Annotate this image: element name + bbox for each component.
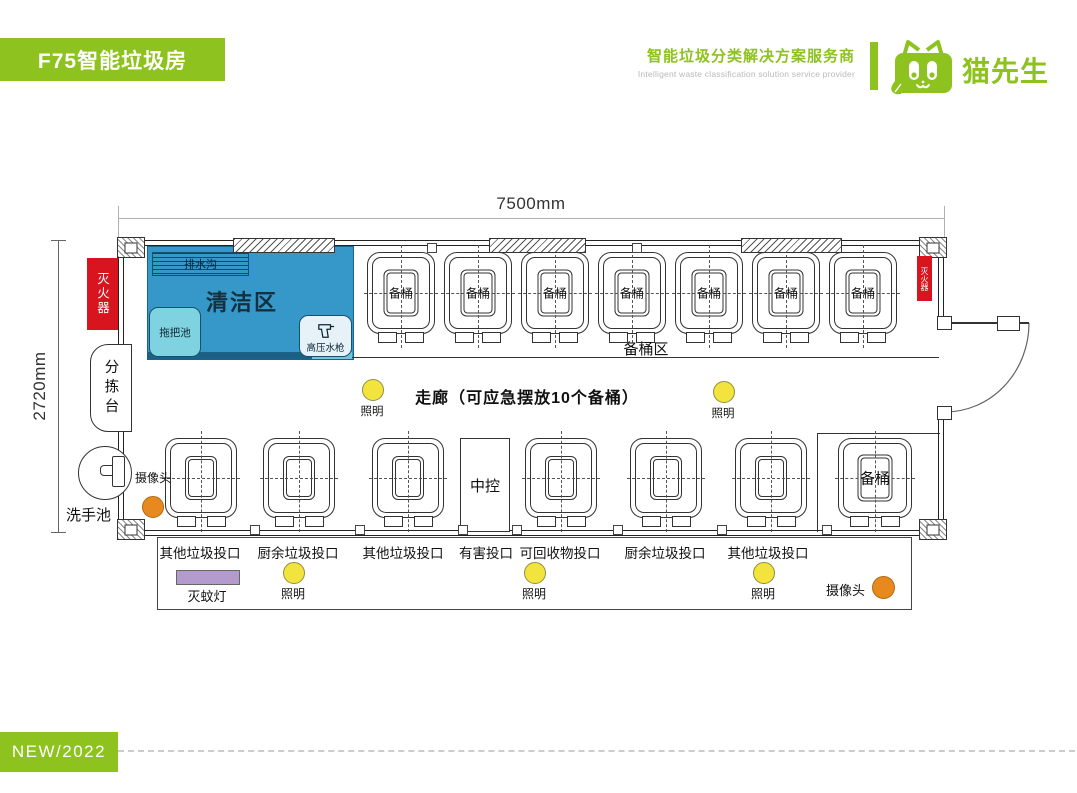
bin-foot [686,332,705,343]
door-jamb [937,316,952,330]
bin-foot [177,516,196,527]
light-label: 照明 [522,585,546,602]
bin-foot [482,332,501,343]
light-dot-icon [362,379,384,401]
door-handle [997,316,1020,331]
bin-foot [559,332,578,343]
corner-post [117,237,145,258]
bin-foot [672,516,691,527]
dim-tick [118,212,119,225]
spare-bin: 备桶 [598,252,666,334]
faucet-icon [112,456,125,487]
pressure-washer-label: 高压水枪 [306,340,344,354]
crosshair-v [771,431,772,532]
brand-separator [870,42,878,90]
bin-label: 备桶 [851,285,875,302]
louver-vent [741,238,842,253]
corner-post [919,237,947,258]
inlet-label: 有害投口 [459,542,513,562]
bin-foot [713,332,732,343]
bin-label: 备桶 [620,285,644,302]
bin-foot [567,516,586,527]
bin-foot [763,332,782,343]
spare-bin: 备桶 [829,252,897,334]
spare-bin: 备桶 [752,252,820,334]
waste-bin [372,438,444,518]
bin-foot [207,516,226,527]
drain-grate: 排水沟 [152,252,249,276]
bin-foot [881,516,900,527]
new-badge: NEW/2022 [0,732,118,772]
inlet-label: 其他垃圾投口 [160,542,241,562]
camera-dot-icon [872,576,895,599]
bin-foot [850,516,869,527]
taglines: 智能垃圾分类解决方案服务商 Intelligent waste classifi… [595,45,855,79]
inlet-label: 厨余垃圾投口 [625,542,706,562]
mop-pool: 拖把池 [149,307,201,357]
waste-bin [630,438,702,518]
bin-foot [455,332,474,343]
bin-label: 备桶 [466,285,490,302]
bin-foot [790,332,809,343]
crosshair-v [299,431,300,532]
spare-bin: 备桶 [367,252,435,334]
wall-anchor [717,525,727,535]
dim-tick [51,532,66,533]
footer-dashed-line [118,750,1075,752]
cat-logo-icon [888,39,958,95]
bin-label: 备桶 [543,285,567,302]
camera-label: 摄像头 [826,580,865,599]
light-dot-icon [713,381,735,403]
light-dot-icon [524,562,546,584]
bin-foot [405,332,424,343]
bin-foot [537,516,556,527]
inlet-label: 厨余垃圾投口 [258,542,339,562]
dim-tick [944,212,945,225]
bin-foot [378,332,397,343]
waste-bin [263,438,335,518]
inlet-label: 其他垃圾投口 [363,542,444,562]
spare-bin: 备桶 [444,252,512,334]
mosquito-lamp-icon [176,570,240,585]
spare-bin: 备桶 [838,438,912,518]
bin-label: 备桶 [774,285,798,302]
brand-name: 猫先生 [962,50,1049,90]
corridor-label: 走廊（可应急摆放10个备桶） [415,384,639,408]
product-title-banner: F75智能垃圾房 [0,38,225,81]
inlet-label: 可回收物投口 [520,542,601,562]
wall-anchor [632,243,642,253]
fire-extinguisher-left: 灭火器 [87,258,118,330]
cleaning-area-label: 清洁区 [206,285,278,317]
bin-foot [384,516,403,527]
waste-bin [165,438,237,518]
dim-width-label: 7500mm [496,194,565,214]
camera-dot-icon [142,496,164,518]
bin-label: 备桶 [860,468,890,489]
dim-height-line [58,240,59,533]
bin-foot [414,516,433,527]
wall-anchor [355,525,365,535]
page: F75智能垃圾房 智能垃圾分类解决方案服务商 Intelligent waste… [0,0,1077,793]
wall-anchor [458,525,468,535]
corner-post [117,519,145,540]
mosquito-lamp-label: 灭蚊灯 [187,586,226,605]
central-control-unit: 中控 [460,438,510,532]
door-swing-arc [940,318,1035,418]
bin-foot [275,516,294,527]
bin-label: 备桶 [697,285,721,302]
spare-bin: 备桶 [521,252,589,334]
fire-extinguisher-right: 灭火器 [917,256,932,301]
crosshair-v [666,431,667,532]
louver-vent [489,238,586,253]
waste-bin [735,438,807,518]
light-dot-icon [283,562,305,584]
door-jamb [937,406,952,420]
spare-bin: 备桶 [675,252,743,334]
inlet-label: 其他垃圾投口 [728,542,809,562]
dim-width-line [118,218,945,219]
bin-foot [747,516,766,527]
corner-post [919,519,947,540]
sorting-table: 分拣台 [90,344,132,432]
pressure-washer: 高压水枪 [299,315,352,357]
waste-bin [525,438,597,518]
tagline-zh: 智能垃圾分类解决方案服务商 [595,45,855,66]
dim-height-label: 2720mm [30,351,50,420]
light-label: 照明 [361,403,384,419]
wash-basin-label: 洗手池 [66,504,111,525]
bin-foot [532,332,551,343]
bin-foot [840,332,859,343]
spare-bin-zone-label: 备桶区 [623,338,668,359]
bin-foot [777,516,796,527]
crosshair-v [408,431,409,532]
crosshair-v [561,431,562,532]
bin-foot [642,516,661,527]
bin-foot [867,332,886,343]
wall-anchor [512,525,522,535]
bin-foot [305,516,324,527]
light-dot-icon [753,562,775,584]
dim-tick [51,240,66,241]
wall-anchor [427,243,437,253]
light-label: 照明 [712,405,735,421]
tagline-en: Intelligent waste classification solutio… [595,69,855,79]
light-label: 照明 [751,585,775,602]
wall-anchor [613,525,623,535]
wall-anchor [250,525,260,535]
bin-label: 备桶 [389,285,413,302]
spray-gun-icon [315,322,337,340]
camera-label: 摄像头 [135,469,171,486]
wall-anchor [822,525,832,535]
louver-vent [233,238,335,253]
light-label: 照明 [281,585,305,602]
crosshair-v [201,431,202,532]
